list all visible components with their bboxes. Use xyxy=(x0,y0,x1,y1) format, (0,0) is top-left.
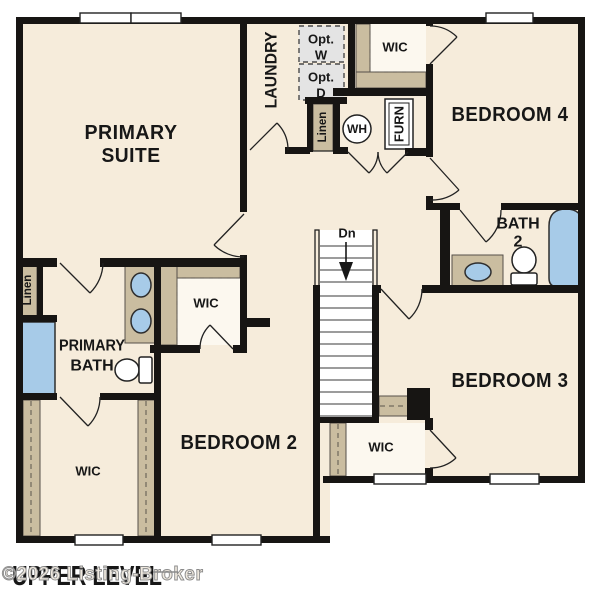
bath2-sink xyxy=(465,263,491,281)
watermark: ©2026 Listing-Broker xyxy=(2,564,203,585)
stairs-down-label: Dn xyxy=(338,226,355,241)
stairs xyxy=(315,230,377,418)
primary-vanity-sink-1 xyxy=(131,273,151,297)
primary-shower xyxy=(20,322,55,397)
wic-top-label: WIC xyxy=(382,40,408,55)
wic-hall-label: WIC xyxy=(193,296,219,311)
primary-bath-label-line1: PRIMARY xyxy=(59,338,125,355)
bath2-label-line1: BATH xyxy=(496,216,539,233)
optional-dryer-label-line2: D xyxy=(316,86,325,101)
bath2-toilet-tank xyxy=(511,273,537,285)
primary-toilet-tank xyxy=(139,357,152,383)
optional-washer-label-line1: Opt. xyxy=(308,32,334,47)
bath2-toilet-bowl xyxy=(512,247,536,273)
window xyxy=(75,535,123,545)
water-heater-label: WH xyxy=(347,122,367,136)
wic-top-shelf-bottom xyxy=(356,72,426,88)
primary-bath-label-line2: BATH xyxy=(70,358,113,375)
primary-vanity-sink-2 xyxy=(131,309,151,333)
wic-bedroom3-shelf-left xyxy=(330,423,346,476)
window xyxy=(80,13,131,23)
window xyxy=(212,535,261,545)
optional-dryer-label-line1: Opt. xyxy=(308,70,334,85)
window xyxy=(486,13,533,23)
floor-plan-drawing: PRIMARY SUITE LAUNDRY BEDROOM 4 BEDROOM … xyxy=(0,0,600,600)
bathtub xyxy=(549,209,583,287)
primary-suite-label-line2: SUITE xyxy=(102,145,161,167)
bedroom4-label: BEDROOM 4 xyxy=(452,104,569,126)
wic-hall-shelf-left xyxy=(160,262,177,345)
furnace-label: FURN xyxy=(392,106,407,142)
window xyxy=(374,474,426,484)
floor-plan-page: PRIMARY SUITE LAUNDRY BEDROOM 4 BEDROOM … xyxy=(0,0,600,600)
linen-hall-label: Linen xyxy=(317,112,329,143)
window xyxy=(490,474,539,484)
bedroom3-label: BEDROOM 3 xyxy=(452,370,569,392)
laundry-label: LAUNDRY xyxy=(262,31,281,109)
linen-bath-label: Linen xyxy=(22,275,34,306)
footer: UPPER LEVEL ©2026 Listing-Broker xyxy=(2,560,203,591)
primary-suite-label-line1: PRIMARY xyxy=(85,122,178,144)
primary-toilet-bowl xyxy=(115,359,139,381)
wic-primary-label: WIC xyxy=(75,464,101,479)
optional-washer-label-line2: W xyxy=(315,48,328,63)
bedroom2-label: BEDROOM 2 xyxy=(181,432,298,454)
window xyxy=(131,13,181,23)
bath2-label-line2: 2 xyxy=(514,234,523,251)
wic-bedroom3-label: WIC xyxy=(368,440,394,455)
